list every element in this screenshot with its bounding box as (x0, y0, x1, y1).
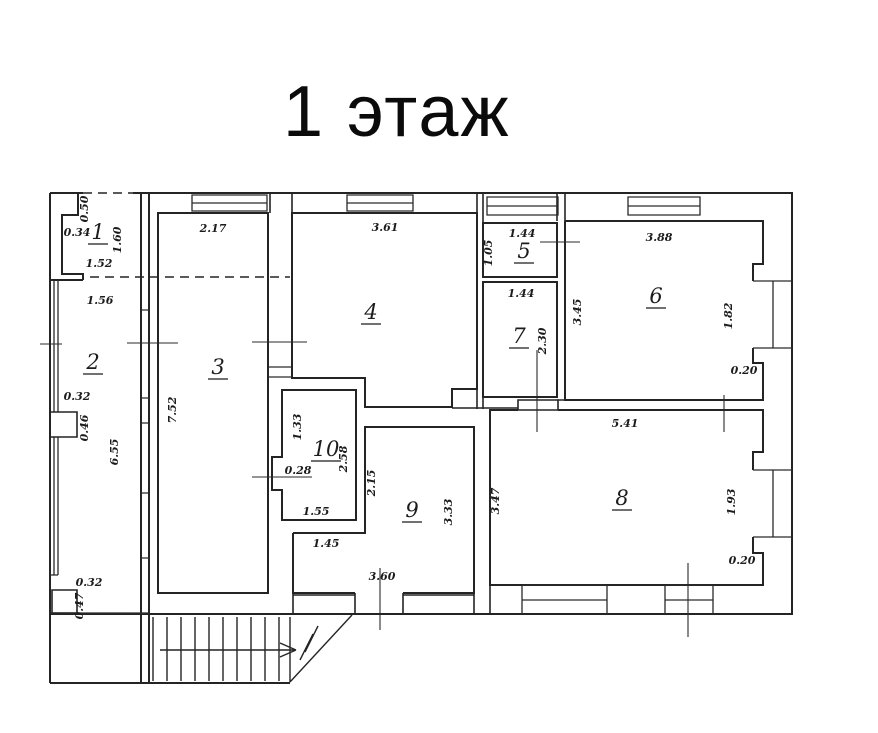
dimension-label: 1.55 (303, 505, 330, 518)
dimension-label: 0.32 (64, 390, 91, 403)
dimension-label: 7.52 (166, 396, 179, 423)
dimension-label: 3.88 (646, 231, 673, 244)
dimension-label: 1.44 (508, 287, 535, 300)
window-right-room8 (753, 470, 792, 537)
dimension-label: 1.82 (722, 302, 735, 329)
dimension-label: 1.93 (725, 488, 738, 515)
door-room8 (518, 400, 558, 410)
interior-walls (51, 193, 763, 683)
dimension-label: 3.61 (372, 221, 399, 234)
left-window-band (50, 280, 58, 575)
dimension-label: 1.60 (111, 226, 124, 253)
room4-box (292, 213, 477, 407)
dimension-label: 2.15 (365, 470, 378, 498)
dimension-label: 6.55 (108, 439, 121, 466)
door-room3-room4 (268, 367, 292, 377)
room-number: 3 (211, 355, 224, 379)
window-top-room5 (487, 197, 558, 215)
dimension-label: 1.33 (291, 413, 304, 440)
dimension-label: 3.60 (369, 570, 396, 583)
room-number: 6 (649, 284, 662, 308)
dimension-label: 3.45 (571, 299, 584, 326)
dimension-label: 2.58 (337, 445, 350, 473)
staircase (153, 615, 352, 682)
dimension-label: 1.52 (86, 257, 113, 270)
room-number: 4 (363, 300, 377, 324)
window-top-room4 (347, 195, 413, 211)
room-number: 9 (405, 498, 418, 522)
dimension-label: 1.05 (482, 240, 495, 267)
dimension-label: 1.45 (313, 537, 340, 550)
dimension-label: 0.32 (76, 576, 103, 589)
window-bottom-right (665, 585, 713, 614)
dimension-label: 5.41 (612, 417, 639, 430)
stair-treads (153, 617, 279, 681)
room-number: 2 (85, 350, 99, 374)
room-number: 10 (313, 437, 340, 461)
dimension-label: 2.17 (199, 222, 227, 235)
wall-room2-room3-joints (51, 310, 149, 613)
dimension-label: 0.28 (285, 464, 312, 477)
stair-cut-line (290, 615, 352, 682)
dimension-label: 0.20 (731, 364, 758, 377)
floorplan-page: 1 этаж (0, 0, 878, 733)
wall-room2-room3 (141, 193, 149, 683)
floor-plan-svg: 12345678910 0.500.341.601.521.560.320.46… (0, 0, 878, 733)
dimension-label: 1.44 (509, 227, 536, 240)
dimension-label: 3.33 (442, 498, 455, 525)
room-number: 7 (512, 324, 526, 348)
outer-wall-path (50, 193, 792, 683)
dimension-label: 0.50 (78, 195, 91, 222)
window-bottom-left (522, 585, 607, 614)
window-right-room6 (753, 281, 792, 348)
dimension-label: 0.46 (78, 414, 91, 441)
room-number: 8 (615, 486, 628, 510)
dimension-label: 2.30 (536, 327, 549, 355)
dimension-label: 3.47 (489, 487, 502, 514)
dimension-label: 1.56 (87, 294, 114, 307)
exterior-walls (50, 193, 792, 683)
dimension-label: 0.20 (729, 554, 756, 567)
room-number: 5 (517, 239, 530, 263)
window-top-room6 (628, 197, 700, 215)
window-top-room3 (192, 195, 267, 211)
dimension-label: 0.34 (64, 226, 91, 239)
room-number: 1 (91, 220, 104, 244)
dimension-label: 0.47 (73, 592, 86, 619)
